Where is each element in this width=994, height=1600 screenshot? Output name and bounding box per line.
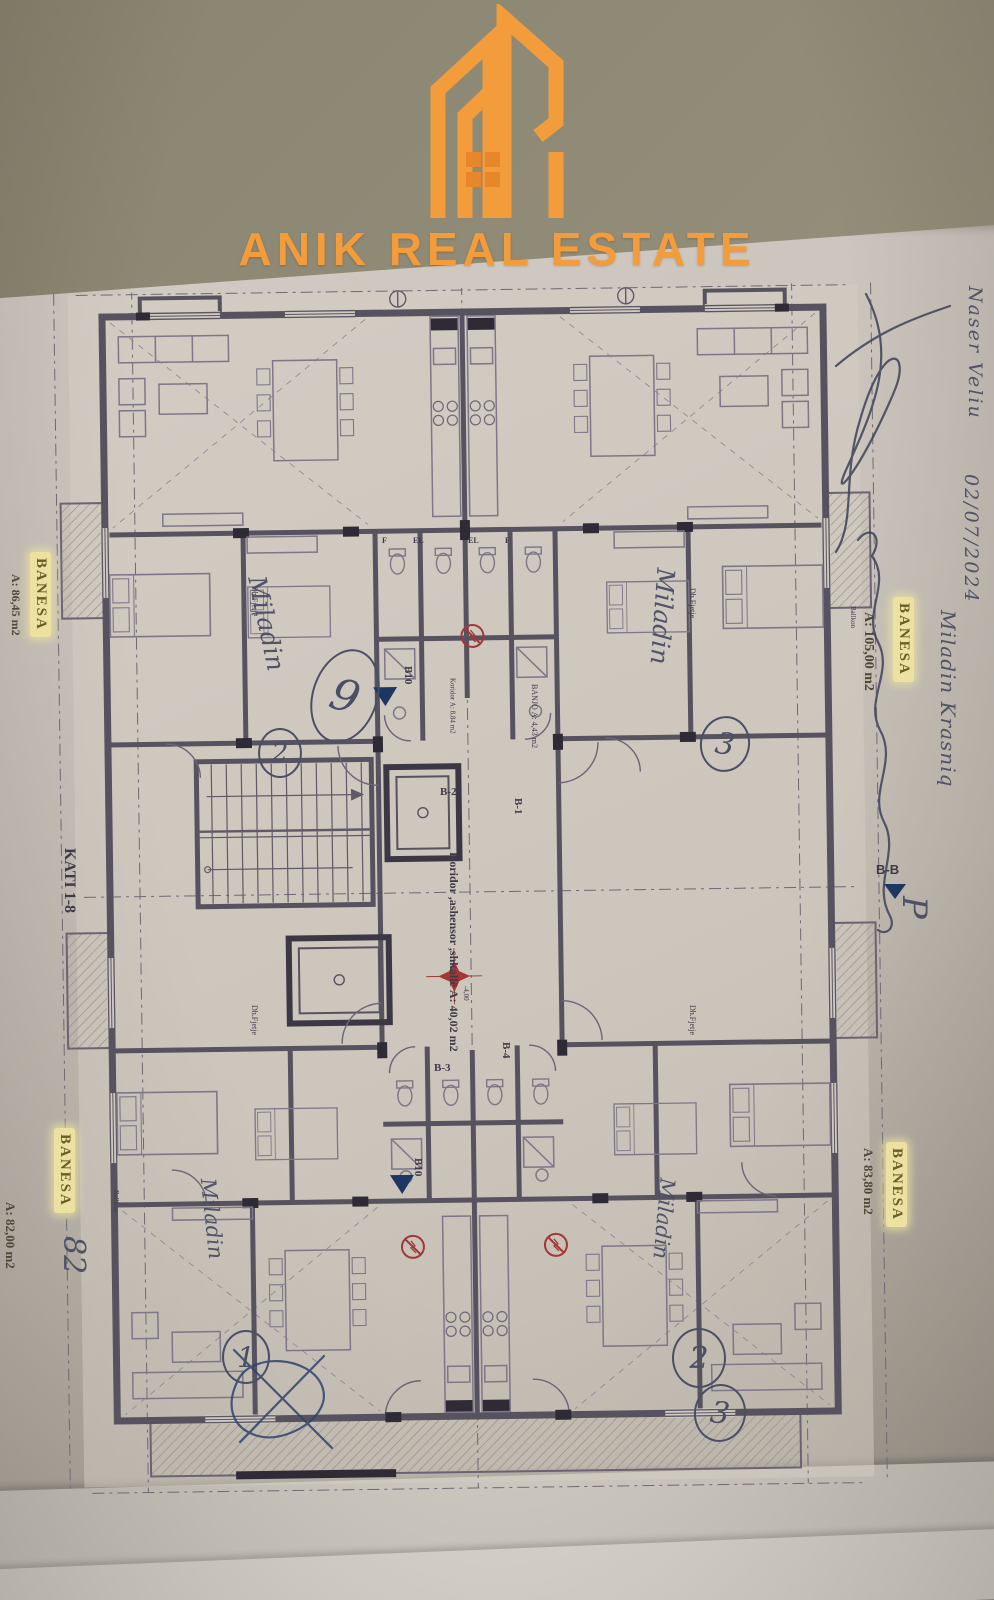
signature-flourish (836, 294, 900, 552)
handwritten-owner-name: Miladin Krasniq (936, 610, 960, 787)
handwritten-name: Naser Veliu (964, 286, 986, 420)
brand-logo: ANIK REAL ESTATE (0, 4, 994, 276)
building-towers-icon (422, 4, 572, 220)
signature-stroke (836, 306, 950, 366)
signature-cursive (858, 533, 892, 932)
circled-number-2b: 2 (672, 1328, 726, 1388)
handwritten-date: 02/07/2024 (960, 474, 982, 604)
circled-number-2a: 2 (258, 728, 302, 778)
handwritten-number-82: 82 (56, 1236, 91, 1274)
handwritten-letter-p: P (894, 896, 934, 919)
photo-scene: ANIK REAL ESTATE (0, 0, 994, 1600)
brand-name: ANIK REAL ESTATE (238, 222, 755, 276)
circled-number-1: 1 (222, 1330, 270, 1384)
